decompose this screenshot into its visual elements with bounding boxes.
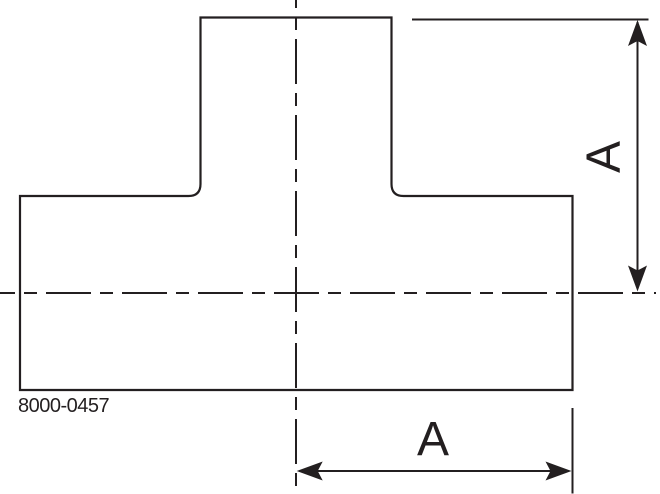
vertical-dimension-label: A bbox=[578, 141, 631, 173]
technical-drawing: A A 8000-0457 bbox=[0, 0, 660, 494]
horizontal-dimension-label: A bbox=[417, 413, 449, 466]
part-number-label: 8000-0457 bbox=[18, 395, 110, 417]
tee-fitting-drawing-svg: A A 8000-0457 bbox=[0, 0, 660, 494]
